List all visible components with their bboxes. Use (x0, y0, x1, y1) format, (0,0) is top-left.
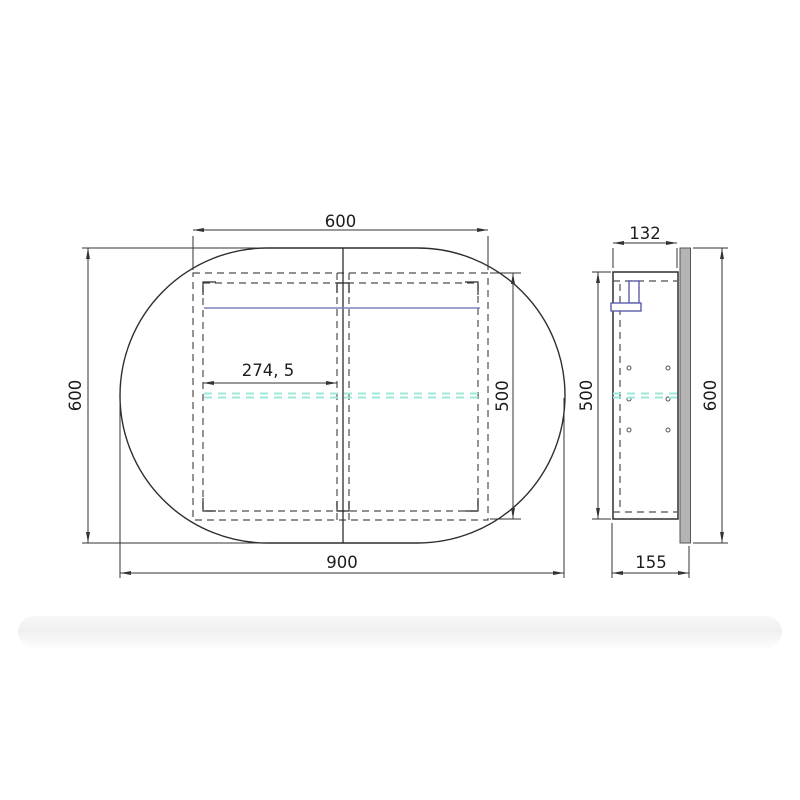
shelf-pin-hole (627, 366, 631, 370)
dim-label-mirror-width: 900 (326, 553, 358, 572)
mirror-panel-side (680, 248, 691, 543)
dim-label-cabinet-height-side: 500 (577, 380, 596, 412)
bracket-bottom-left (203, 498, 216, 511)
bracket-top-right (465, 282, 478, 295)
glass-shelf-line-front (204, 394, 480, 398)
shelf-pin-hole (666, 366, 670, 370)
mirror-cabinet-drawing: 600 600 900 500 (0, 0, 800, 800)
cabinet-inner-dashed (203, 283, 478, 511)
shelf-pin-hole (627, 428, 631, 432)
side-view: 132 500 600 155 (577, 224, 728, 578)
front-view: 600 600 900 500 (66, 212, 565, 578)
bracket-top-left (203, 282, 216, 295)
bracket-bottom-right (465, 498, 478, 511)
dim-label-overall-depth: 155 (635, 553, 667, 572)
dim-label-hinge-offset: 274, 5 (242, 361, 294, 380)
dim-label-mirror-height-side: 600 (701, 380, 720, 412)
dim-cabinet-depth (613, 243, 677, 268)
bracket-vertical-part (629, 281, 639, 303)
shelf-pin-hole (666, 428, 670, 432)
technical-drawing-page: 600 600 900 500 (0, 0, 800, 800)
dim-label-cabinet-width: 600 (325, 212, 357, 231)
dim-mirror-height (82, 248, 268, 543)
dim-mirror-width (120, 398, 564, 578)
dim-label-cabinet-depth: 132 (629, 224, 661, 243)
dim-label-mirror-height: 600 (66, 380, 85, 412)
bracket-horizontal-part (611, 303, 641, 311)
corner-brackets (203, 282, 478, 511)
dim-label-cabinet-height-front: 500 (493, 380, 512, 412)
